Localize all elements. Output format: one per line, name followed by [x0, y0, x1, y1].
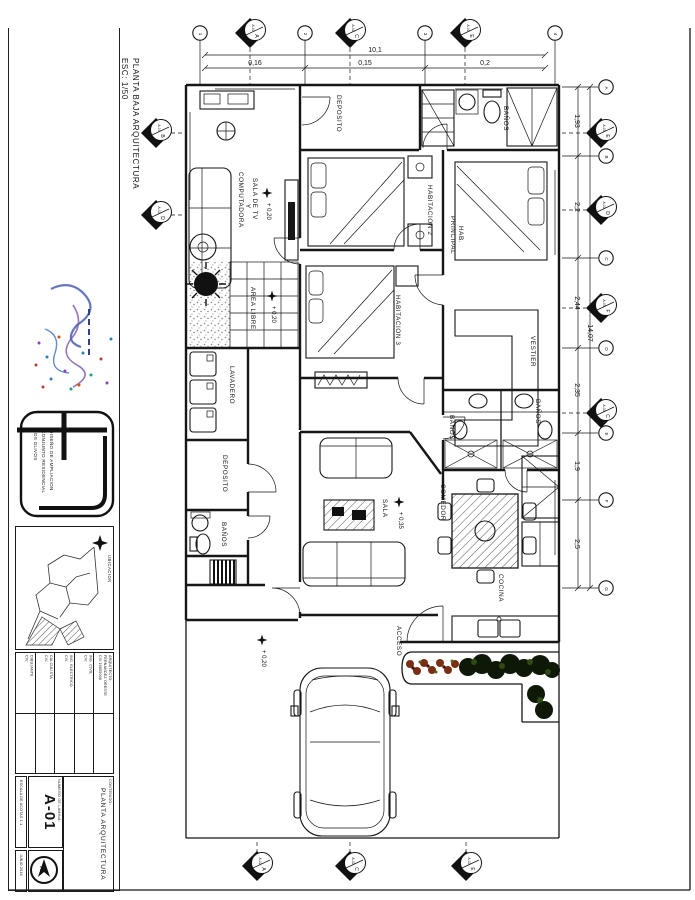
room-label-lavadero: LAVADERO [228, 366, 235, 404]
level-acceso: + 0,20 [260, 650, 266, 668]
north-arrow-box: N [28, 850, 63, 892]
garden-planter [402, 652, 560, 722]
room-labels: DEPOSITO BAÑOS SALA DE TV Y COMPUTADORA … [220, 95, 543, 656]
svg-text:COMPUTADORA: COMPUTADORA [237, 172, 244, 228]
section-markers-top: A-02 A A-02 C A-02 E [235, 18, 481, 48]
svg-text:C: C [604, 414, 610, 418]
svg-text:G: G [604, 587, 609, 591]
svg-text:0,15: 0,15 [358, 60, 372, 67]
sheet-title: PLANTA BAJA ARQUITECTURA ESC: 1/50 [119, 58, 141, 288]
firm-logo-box: DISEÑO DE AMPLIACION CONJUNTO RESIDENCIA… [17, 408, 117, 522]
svg-text:E: E [604, 432, 609, 435]
room-label-comedor: COMEDOR [439, 484, 446, 521]
room-label-vestier: VESTIER [529, 336, 536, 367]
signature-cell: CALCULISTACIV. [36, 653, 56, 713]
room-label-banos-1: BAÑOS [448, 415, 457, 440]
scale-strip: ESCALA DE ACOTAS 1:1 [15, 776, 27, 848]
flower-plants [406, 659, 459, 675]
firm-name: DISEÑO DE AMPLIACION CONJUNTO RESIDENCIA… [31, 430, 55, 514]
svg-text:0,16: 0,16 [248, 60, 262, 67]
dim-overall-right: 14,07 [586, 324, 593, 342]
bush-plants [459, 654, 560, 719]
room-label-banos-top: BAÑOS [502, 106, 511, 131]
signature-table: DIBUJANTECIV. CALCULISTACIV. ING. ELECTR… [15, 652, 114, 774]
signature-cell: DIBUJANTECIV. [16, 653, 36, 713]
location-map [16, 527, 110, 646]
room-label-cocina: COCINA [497, 574, 504, 602]
signature-row-labels: DIBUJANTECIV. CALCULISTACIV. ING. ELECTR… [16, 653, 113, 713]
sheet-scale-text: ESC: 1/50 [119, 58, 130, 288]
signature-cell: ING. ELECTRICOCIV. [55, 653, 75, 713]
svg-text:2: 2 [303, 33, 308, 36]
svg-text:D: D [604, 211, 610, 215]
north-arrow-icon: N [29, 851, 59, 888]
room-label-acceso: ACCESO [395, 626, 402, 656]
level-sala: + 0,35 [397, 512, 403, 530]
svg-text:2,2: 2,2 [573, 202, 580, 212]
svg-text:A-01: A-01 [157, 124, 161, 131]
room-label-area-libre: AREA LIBRE [249, 287, 256, 330]
svg-text:A-02: A-02 [258, 857, 262, 864]
room-label-deposito-left: DEPOSITO [221, 455, 228, 492]
svg-text:A-02: A-02 [351, 24, 355, 31]
date-strip: JUNIO 2016 [15, 850, 27, 892]
svg-text:A-03: A-03 [602, 299, 606, 306]
svg-text:4: 4 [553, 33, 558, 36]
svg-text:1: 1 [198, 33, 203, 36]
signature-row-blank [16, 713, 113, 774]
location-map-box: UBICACION [15, 526, 114, 650]
section-markers-bottom: A-02 A A-02 C A-02 E [242, 842, 482, 881]
room-label-banos-2: BAÑOS [534, 399, 543, 424]
car [291, 668, 399, 836]
room-label-sala: SALA [381, 499, 388, 518]
svg-text:A-02: A-02 [467, 857, 471, 864]
signature-cell: ING. CIVILCIV. [75, 653, 95, 713]
level-markers: + 0,20 + 0,20 + 0,35 + 0,20 [257, 188, 405, 668]
svg-text:2,35: 2,35 [573, 383, 580, 397]
room-label-habitacion2: HABITACION 2 [426, 185, 433, 235]
svg-text:A-01: A-01 [602, 201, 606, 208]
level-area-libre: + 0,20 [270, 306, 276, 324]
title-strip: DISEÑO DE AMPLIACION CONJUNTO RESIDENCIA… [8, 28, 120, 891]
svg-text:2,5: 2,5 [573, 539, 580, 549]
svg-text:F: F [604, 309, 610, 312]
svg-text:A-03: A-03 [602, 124, 606, 131]
svg-text:PRINCIPAL: PRINCIPAL [449, 216, 456, 254]
svg-text:A-02: A-02 [251, 24, 255, 31]
level-sala-tv: + 0,20 [265, 203, 271, 221]
svg-text:C: C [353, 867, 359, 871]
sheet-number: A-01 [42, 777, 56, 847]
signature-cell: ARQUITECTO:FERNANDEZ ORESTECIV.19855006 [94, 653, 113, 713]
architectural-plan-sheet: 1 2 3 4 10,1 0,16 0,15 0,2 A-02 A A-02 C… [0, 0, 695, 900]
svg-text:A-02: A-02 [351, 857, 355, 864]
content-title: PLANTA ARQUITECTURA [98, 777, 107, 891]
firm-watermark [21, 275, 121, 393]
svg-text:1,9: 1,9 [573, 461, 580, 471]
svg-text:F: F [604, 500, 609, 503]
right-grid-and-dimensions: A B C D E F G 1,93 2,2 2,44 2,35 1,9 2,5… [562, 80, 617, 595]
svg-text:Y: Y [244, 204, 251, 209]
room-label-banos-left: BAÑOS [220, 522, 229, 547]
svg-text:A-01: A-01 [157, 206, 161, 213]
content-label: CONTENIDO: [107, 777, 113, 891]
svg-text:A-02: A-02 [466, 24, 470, 31]
section-markers-left: A-01 B A-01 D [141, 118, 186, 230]
room-label-habitacion3: HABITACION 3 [394, 295, 401, 345]
svg-text:D: D [159, 216, 165, 220]
room-label-deposito-top: DEPOSITO [335, 95, 342, 132]
svg-text:2,44: 2,44 [573, 296, 580, 310]
svg-text:B: B [604, 155, 609, 158]
sheet-title-text: PLANTA BAJA ARQUITECTURA [130, 58, 141, 288]
room-label-hab-principal: HAB. [457, 226, 464, 243]
sheet-number-box: NUMERO DE LAMINA: A-01 [28, 776, 63, 848]
room-label-sala-tv: SALA DE TV [251, 178, 258, 220]
svg-text:C: C [353, 34, 359, 38]
svg-text:1,93: 1,93 [573, 114, 580, 128]
svg-text:N: N [38, 866, 45, 871]
svg-text:3: 3 [423, 33, 428, 36]
svg-text:0,2: 0,2 [480, 60, 490, 67]
content-box: CONTENIDO: PLANTA ARQUITECTURA [63, 776, 114, 892]
dim-overall-top: 10,1 [368, 47, 382, 54]
svg-text:A-03: A-03 [602, 404, 606, 411]
map-label: UBICACION [107, 555, 112, 583]
